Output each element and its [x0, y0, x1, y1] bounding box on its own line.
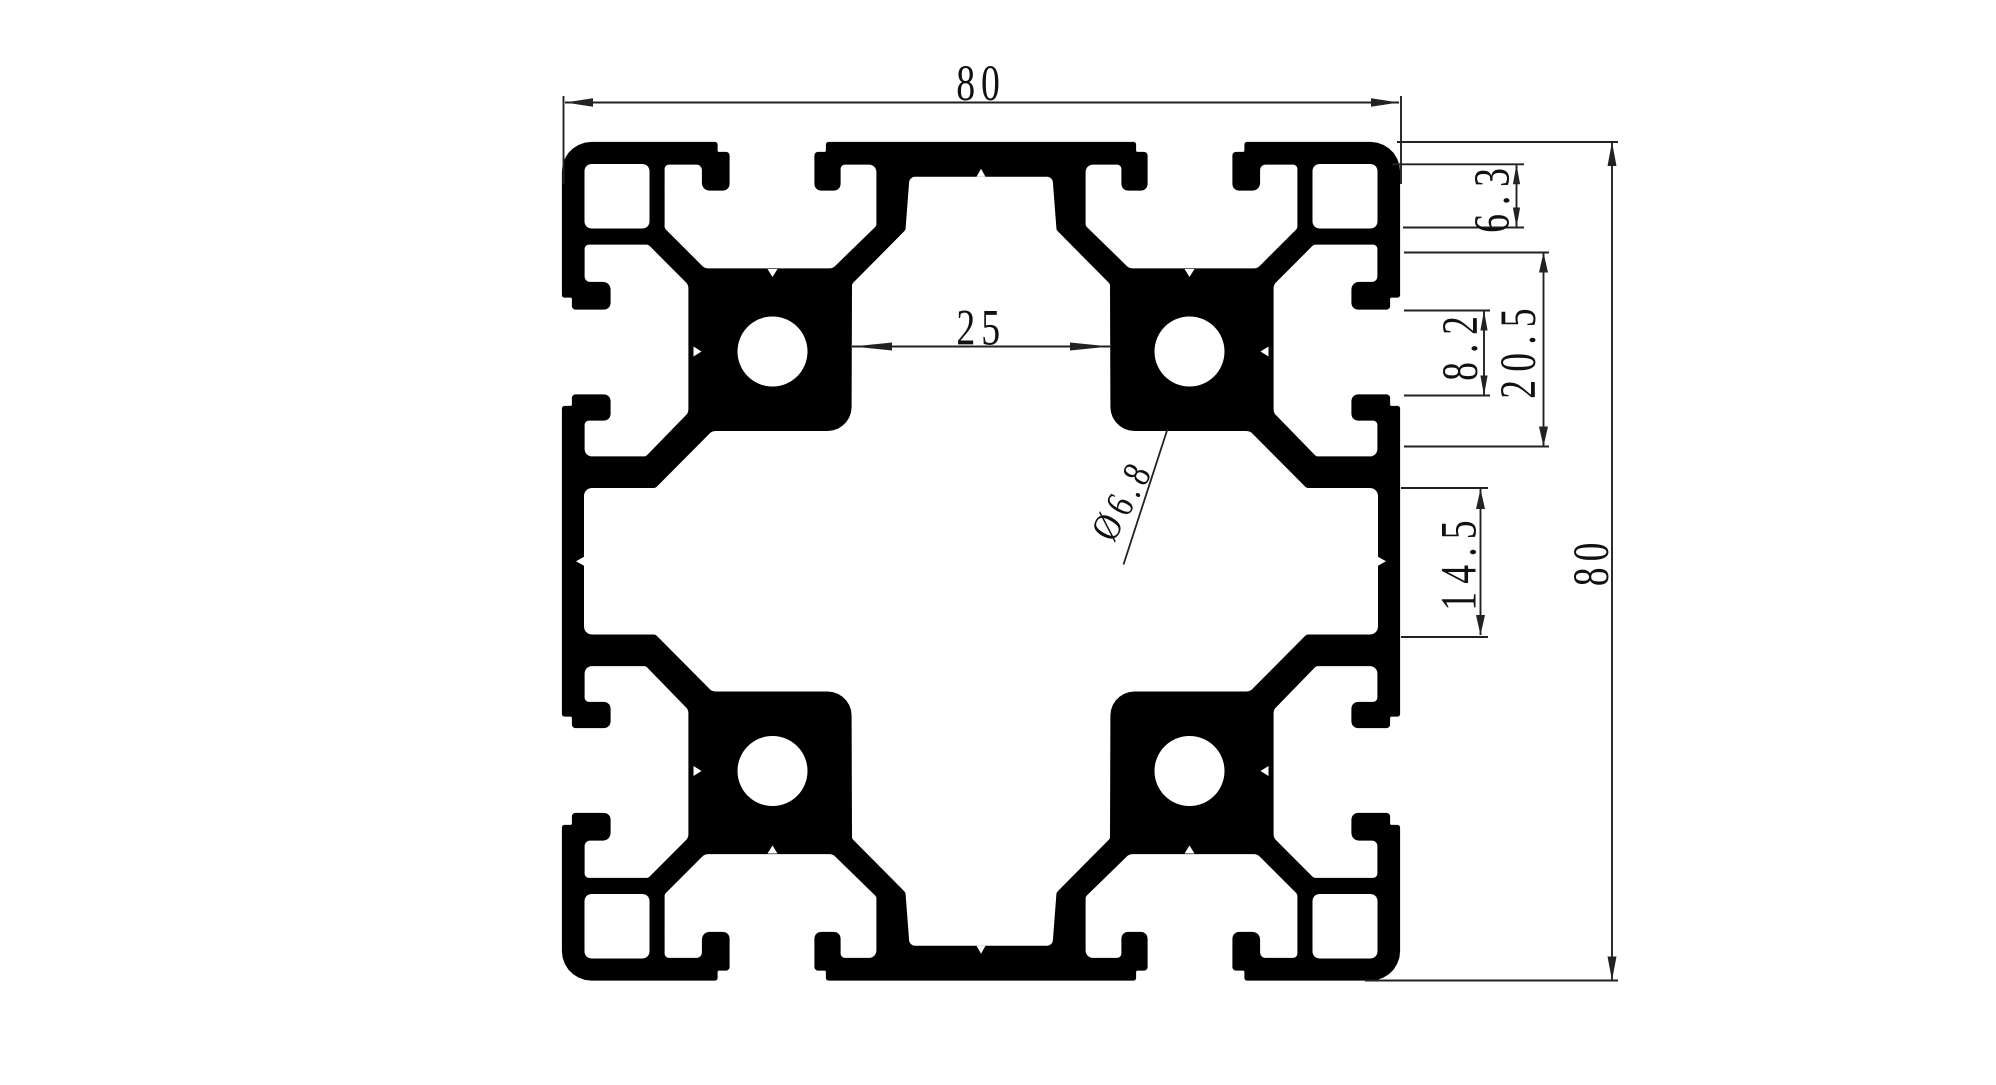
svg-text:80: 80 [956, 55, 1006, 112]
svg-text:80: 80 [1563, 537, 1620, 587]
svg-text:6.3: 6.3 [1464, 159, 1521, 233]
svg-text:25: 25 [956, 299, 1006, 356]
svg-text:8.2: 8.2 [1432, 307, 1489, 381]
svg-text:20.5: 20.5 [1490, 300, 1547, 399]
svg-text:14.5: 14.5 [1430, 512, 1487, 611]
